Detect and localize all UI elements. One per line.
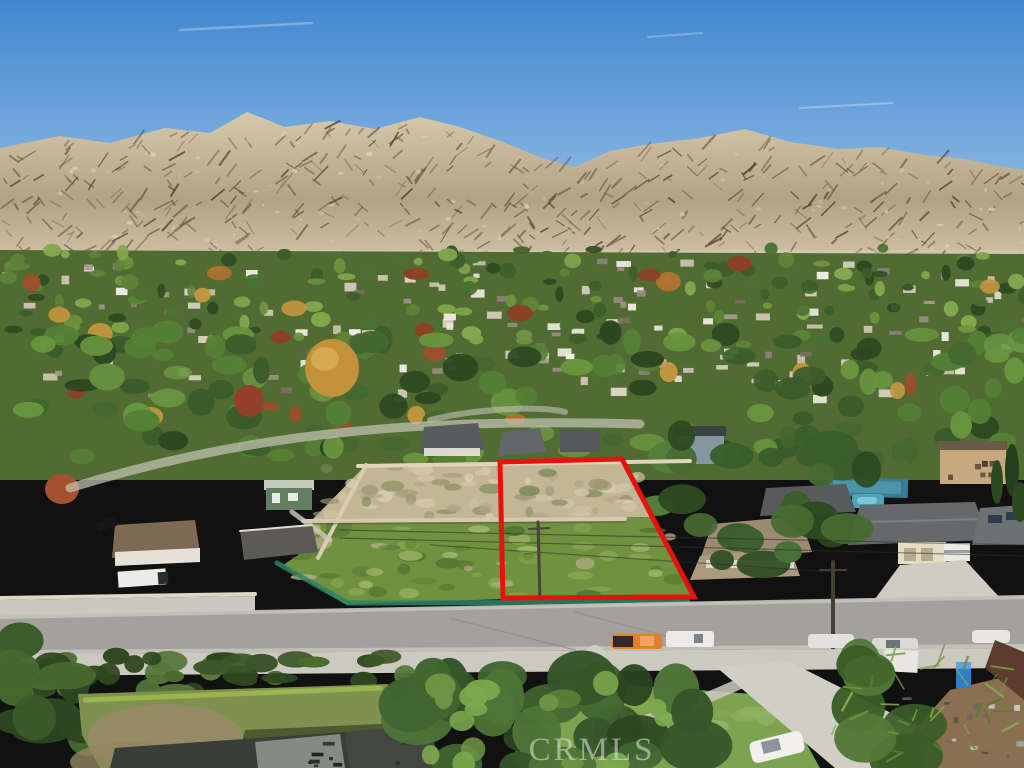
- canopy-trees: [808, 463, 835, 486]
- tree-band-upper: [944, 301, 958, 316]
- mountain-highlights: [543, 197, 546, 201]
- suburb-houses: [438, 284, 445, 290]
- tree-band-upper: [516, 330, 532, 341]
- lot-dirt-mottle: [444, 484, 461, 491]
- tree-band-lower: [158, 431, 188, 450]
- suburb-roofs: [735, 300, 745, 303]
- lot-grass-mottle: [442, 552, 458, 559]
- tree-band-lower: [152, 349, 173, 362]
- mountain-highlights: [72, 167, 78, 171]
- mountain-highlights: [112, 235, 118, 238]
- tree-band-lower: [873, 371, 893, 389]
- lot-dirt-mottle: [323, 510, 338, 519]
- mountain-highlights: [179, 173, 181, 177]
- mountain-highlights: [296, 142, 301, 146]
- mountain-highlights: [213, 243, 219, 246]
- tree-band-lower: [950, 411, 972, 438]
- lot-dirt-mottle: [538, 468, 556, 477]
- suburb-roofs: [404, 299, 411, 304]
- tree-band-upper: [108, 313, 126, 322]
- mountain-highlights: [195, 170, 200, 173]
- tree-band-upper: [112, 322, 129, 333]
- mountain-highlights: [568, 229, 574, 232]
- mountain-highlights: [881, 181, 884, 185]
- lot-grass-mottle: [392, 526, 411, 530]
- tree-band-lower: [623, 328, 641, 354]
- tree-band-upper: [462, 326, 482, 340]
- mountain-highlights: [139, 213, 145, 216]
- tree-band-autumn: [890, 382, 905, 399]
- tree-band-upper: [543, 279, 557, 285]
- mountain-highlights: [816, 205, 822, 207]
- mountain-highlights: [71, 154, 78, 159]
- tree-band-upper: [121, 274, 139, 290]
- tree-band-lower: [400, 371, 431, 393]
- lot-grass-mottle: [399, 588, 420, 598]
- tree-band-upper: [796, 304, 810, 316]
- tree-band-upper: [873, 271, 888, 277]
- tree-band-upper: [846, 278, 865, 286]
- suburb-houses: [611, 388, 627, 396]
- lot-utility-pole: [538, 522, 540, 600]
- tree-band-upper: [4, 326, 22, 334]
- mountain-highlights: [58, 192, 63, 195]
- tan-house-windows: [980, 473, 985, 478]
- lot-dirt-mottle: [571, 511, 590, 517]
- suburb-roofs: [99, 305, 105, 310]
- tree-band-upper: [438, 248, 457, 261]
- lot-grass-mottle: [348, 588, 365, 596]
- lot-grass-mottle: [648, 569, 662, 577]
- tree-band-lower: [722, 348, 755, 365]
- mountain-highlights: [505, 227, 507, 231]
- tree-band-upper: [10, 262, 29, 270]
- lot-grass-mottle: [399, 551, 423, 561]
- tree-band-upper: [117, 245, 129, 261]
- tree-band-upper: [75, 298, 91, 307]
- tree-band-upper: [189, 318, 201, 329]
- roof-vents: [312, 753, 324, 757]
- lot-grass-mottle: [468, 526, 490, 533]
- suburb-houses: [189, 375, 201, 380]
- tree-band-upper: [43, 244, 61, 257]
- canopy-trees: [710, 443, 754, 469]
- tree-band-lower: [663, 333, 696, 352]
- mountain-highlights: [253, 190, 258, 192]
- tree-band-lower: [92, 402, 119, 417]
- tree-band-upper: [513, 246, 530, 253]
- suburb-roofs: [508, 323, 518, 327]
- tree-band-lower: [592, 355, 617, 378]
- tree-band-upper: [590, 296, 602, 303]
- mountain-highlights: [884, 209, 888, 213]
- hedge-row: [297, 657, 330, 668]
- lot-dirt-mottle: [362, 485, 379, 495]
- mountain-highlights: [498, 235, 501, 240]
- suburb-roofs: [55, 371, 62, 376]
- palm-cluster: [844, 655, 894, 687]
- tree-band-lower: [773, 335, 802, 349]
- house-roof: [498, 428, 546, 456]
- tree-band-upper: [277, 249, 292, 260]
- tree-band-upper: [704, 261, 719, 270]
- lot-grass-mottle: [518, 554, 540, 564]
- tree-band-lower: [753, 369, 778, 392]
- white-truck-cab: [158, 572, 169, 585]
- mountain-highlights: [446, 216, 451, 220]
- tree-band-lower: [793, 366, 826, 385]
- construction-debris: [967, 715, 972, 720]
- mountain-highlights: [268, 184, 272, 186]
- tree-band-lower: [323, 436, 344, 459]
- suburb-roofs: [552, 332, 561, 336]
- tree-band-upper: [247, 282, 266, 289]
- tree-band-upper: [887, 303, 900, 312]
- cottage-window: [272, 493, 280, 503]
- mountain-highlights: [338, 172, 344, 175]
- mountain-highlights: [659, 164, 665, 166]
- tree-band-upper: [364, 269, 378, 277]
- tree-band-upper: [746, 275, 760, 283]
- tree-band-lower: [793, 411, 814, 425]
- tree-band-upper: [308, 278, 326, 284]
- lot-dirt-mottle: [615, 483, 631, 492]
- mountain-highlights: [979, 207, 982, 211]
- mountain-highlights: [307, 139, 314, 143]
- mountain-highlights: [145, 151, 147, 155]
- hedge-row: [221, 653, 260, 672]
- mountain-highlights: [228, 215, 233, 219]
- lot-dirt-mottle: [489, 479, 499, 483]
- mountain-highlights: [233, 233, 236, 238]
- suburb-houses: [24, 303, 36, 309]
- mountain-highlights: [888, 155, 892, 158]
- tree-band-autumn: [507, 305, 532, 322]
- mountain-highlights: [282, 242, 288, 244]
- tree-band-upper: [564, 253, 581, 268]
- tree-band-lower: [13, 402, 44, 418]
- hedge-row: [363, 655, 385, 666]
- roof-vents: [329, 757, 333, 760]
- tan-house-windows: [948, 475, 953, 480]
- lot-dirt-mottle: [574, 488, 590, 496]
- tree-band-lower: [151, 389, 185, 408]
- center-tree-highlights: [649, 699, 666, 717]
- suburb-roofs: [281, 387, 292, 393]
- mountain-highlights: [657, 227, 660, 230]
- mountain-highlights: [106, 169, 110, 173]
- tree-band-lower: [841, 360, 859, 379]
- lot-grass-mottle: [568, 571, 594, 579]
- lot-dirt-mottle: [551, 499, 568, 506]
- tree-band-lower: [31, 336, 56, 353]
- mountain-highlights: [936, 224, 943, 226]
- tree-band-lower: [443, 354, 479, 382]
- mountain-highlights: [680, 212, 685, 216]
- mountain-highlights: [931, 246, 934, 249]
- mountain-highlights: [720, 178, 725, 181]
- canopy-trees: [794, 425, 821, 450]
- tree-band-upper: [166, 304, 176, 320]
- roof-vents: [314, 765, 318, 767]
- lot-grass-mottle: [318, 573, 340, 578]
- tree-band-upper: [765, 242, 778, 255]
- construction-debris: [1016, 741, 1024, 747]
- suburb-roofs: [597, 259, 607, 265]
- canopy-trees: [821, 513, 874, 544]
- garage-door: [904, 548, 916, 561]
- suburb-houses: [628, 304, 636, 311]
- tree-band-upper: [19, 310, 33, 316]
- roof-vents: [323, 742, 335, 746]
- lot-dirt-mottle: [443, 473, 463, 478]
- tree-band-autumn: [23, 274, 41, 291]
- tree-band-upper: [28, 294, 45, 301]
- tree-band-upper: [221, 253, 236, 266]
- tree-band-upper: [311, 312, 331, 327]
- mountain-highlights: [329, 204, 335, 206]
- suburb-roofs: [637, 290, 646, 297]
- tree-band-upper: [869, 312, 879, 324]
- hedge-row: [124, 655, 144, 673]
- center-tree-highlights: [539, 694, 558, 711]
- center-tree-cluster: [616, 664, 653, 706]
- tree-band-lower: [600, 320, 622, 344]
- mountain-highlights: [292, 169, 298, 172]
- lot-grass-mottle: [576, 558, 595, 570]
- mountain-highlights: [318, 211, 324, 215]
- suburb-houses: [680, 260, 693, 267]
- center-tree-highlights: [593, 671, 618, 696]
- mountain-highlights: [584, 235, 590, 239]
- tree-band-lower: [164, 366, 193, 380]
- suburb-houses: [716, 365, 728, 370]
- mountain-highlights: [919, 239, 922, 241]
- left-edge-trees: [13, 695, 56, 740]
- tree-band-upper: [861, 268, 872, 279]
- mountain-highlights: [204, 237, 210, 242]
- tree-band-upper: [974, 298, 988, 307]
- tree-band-upper: [499, 263, 516, 278]
- tree-band-autumn: [194, 288, 210, 303]
- mountain-highlights: [946, 244, 950, 247]
- tree-band-lower: [267, 449, 295, 462]
- rv-stripe: [944, 550, 970, 553]
- tree-band-lower: [897, 403, 921, 421]
- tree-band-upper: [1008, 274, 1024, 289]
- tree-band-lower: [747, 404, 774, 422]
- tree-band-upper: [403, 320, 416, 334]
- white-pickup-truck: [666, 631, 714, 647]
- mountain-highlights: [124, 211, 128, 213]
- golden-tree-highlight: [311, 347, 339, 371]
- mountain-highlights: [984, 188, 986, 192]
- tree-band-upper: [462, 281, 478, 295]
- tree-band-upper: [293, 332, 304, 341]
- canopy-trees: [668, 421, 696, 451]
- cypress: [991, 460, 1003, 504]
- suburb-roofs: [432, 368, 442, 374]
- construction-debris: [1006, 754, 1009, 759]
- roof-vents: [395, 761, 400, 765]
- tree-band-lower: [838, 395, 864, 417]
- tree-band-lower: [905, 328, 939, 342]
- tree-band-lower: [225, 334, 257, 355]
- palm-cluster: [834, 713, 896, 763]
- suburb-houses: [581, 377, 588, 385]
- tree-band-autumn: [207, 266, 232, 280]
- palm-fronds: [895, 675, 904, 690]
- mountain-highlights: [899, 248, 902, 250]
- center-tree-highlights: [422, 745, 440, 764]
- listing-photo-stage: CRMLS: [0, 0, 1024, 768]
- suburb-roofs: [617, 267, 624, 271]
- mountain-highlights: [262, 204, 264, 207]
- suburb-roofs: [614, 297, 623, 303]
- right-lawn-mottle: [730, 710, 760, 722]
- white-car: [972, 630, 1010, 643]
- suburb-houses: [942, 332, 949, 341]
- lot-dirt-mottle: [414, 482, 425, 486]
- suburb-houses: [378, 275, 388, 281]
- construction-debris: [954, 717, 959, 723]
- tree-band-lower: [131, 327, 158, 349]
- mountain-highlights: [817, 200, 823, 204]
- mountain-highlights: [524, 204, 530, 209]
- suburb-roofs: [919, 316, 928, 322]
- solar-panel: [988, 515, 1002, 523]
- tree-band-autumn: [905, 373, 917, 395]
- tree-band-lower: [515, 387, 537, 406]
- cottage-window: [288, 493, 298, 501]
- tree-band-lower: [892, 443, 910, 461]
- mountain-highlights: [988, 207, 995, 211]
- tree-band-lower: [948, 342, 976, 366]
- mountain-highlights: [896, 238, 902, 240]
- lot-dirt-mottle: [479, 502, 493, 514]
- tree-band-upper: [706, 300, 715, 313]
- photo-scene: [0, 0, 1024, 768]
- suburb-houses: [548, 323, 561, 330]
- hedge-row: [261, 673, 298, 683]
- lot-grass-mottle: [472, 573, 483, 577]
- lot-dirt-mottle: [545, 486, 554, 496]
- tree-band-upper: [763, 303, 773, 309]
- tree-band-upper: [685, 281, 696, 295]
- lot-grass-mottle: [464, 566, 473, 571]
- tree-band-upper: [538, 305, 549, 311]
- suburb-houses: [683, 368, 694, 373]
- tree-band-upper: [629, 265, 638, 281]
- lot-grass-mottle: [331, 578, 344, 588]
- suburb-houses: [703, 318, 713, 324]
- tree-band-lower: [857, 338, 882, 359]
- tree-band-upper: [406, 304, 420, 316]
- mountain-highlights: [582, 217, 584, 221]
- tree-band-upper: [560, 321, 576, 331]
- tree-band-upper: [96, 291, 107, 300]
- tree-band-upper: [506, 294, 516, 307]
- tree-band-upper: [114, 261, 125, 271]
- tree-band-lower: [69, 449, 95, 464]
- tree-band-lower: [479, 371, 507, 395]
- tree-band-upper: [594, 303, 607, 318]
- mountain-highlights: [355, 218, 361, 221]
- mountain-highlights: [136, 211, 140, 214]
- construction-debris: [902, 697, 911, 699]
- suburb-houses: [582, 286, 590, 294]
- suburb-houses: [566, 354, 575, 360]
- suburb-houses: [955, 279, 969, 286]
- suburb-houses: [444, 313, 456, 320]
- mountain-highlights: [753, 229, 756, 231]
- tree-band-upper: [801, 280, 819, 294]
- tree-band-lower: [631, 351, 664, 368]
- tree-band-upper: [539, 251, 554, 262]
- tree-band-upper: [363, 318, 377, 328]
- suburb-houses: [399, 365, 406, 373]
- suburb-houses: [616, 261, 631, 267]
- lot-mid-wall: [303, 519, 625, 521]
- car-window: [886, 640, 900, 648]
- tree-band-upper: [976, 252, 990, 260]
- mountain-highlights: [127, 221, 133, 225]
- tree-band-upper: [560, 269, 570, 277]
- center-tree-cluster: [671, 688, 713, 735]
- lot-grass-mottle: [397, 563, 410, 574]
- mountain-highlights: [300, 218, 302, 221]
- suburb-houses: [654, 326, 662, 331]
- tree-band-upper: [813, 261, 830, 267]
- suburb-roofs: [618, 318, 630, 324]
- tree-band-upper: [207, 302, 218, 315]
- palm-tree: [774, 541, 802, 563]
- tree-band-upper: [942, 265, 951, 281]
- tree-band-lower: [560, 359, 593, 376]
- tree-band-lower: [415, 392, 441, 404]
- white-pickup-window: [694, 634, 703, 643]
- orange-pickup-cab: [640, 636, 654, 646]
- suburb-houses: [487, 312, 502, 319]
- tree-band-upper: [736, 341, 751, 348]
- tree-band-upper: [902, 284, 914, 291]
- mountain-highlights: [841, 206, 846, 210]
- canopy-trees: [771, 504, 814, 538]
- tree-band-upper: [569, 334, 587, 344]
- lot-dirt-mottle: [446, 504, 461, 511]
- suburb-houses: [446, 323, 453, 330]
- lot-dirt-mottle: [525, 477, 531, 484]
- suburb-houses: [61, 276, 69, 285]
- tree-band-upper: [135, 292, 148, 301]
- mountain-highlights: [376, 175, 381, 179]
- construction-debris: [944, 702, 949, 705]
- tree-band-upper: [878, 244, 889, 253]
- black-car: [95, 516, 117, 532]
- suburb-houses: [345, 283, 357, 292]
- tree-band-upper: [90, 270, 105, 277]
- tree-band-upper: [55, 294, 64, 308]
- construction-debris: [945, 741, 952, 743]
- tree-band-upper: [921, 271, 930, 279]
- lot-grass-mottle: [435, 558, 460, 569]
- tree-band-autumn: [281, 300, 306, 316]
- tree-band-lower: [419, 332, 454, 347]
- tree-band-lower: [629, 380, 657, 396]
- tan-house-windows: [975, 464, 981, 470]
- palm-fronds: [993, 711, 1014, 712]
- lot-grass-mottle: [411, 578, 436, 585]
